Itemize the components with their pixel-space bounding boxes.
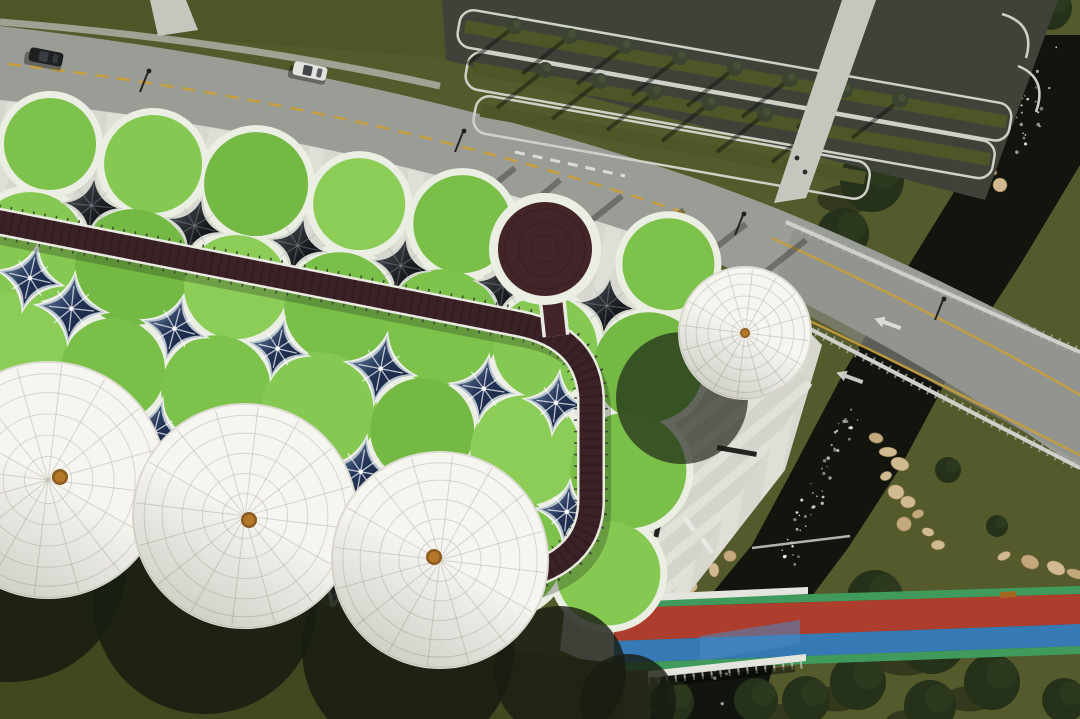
water-sparkle <box>812 492 814 494</box>
water-sparkle <box>1035 101 1037 103</box>
water-sparkle <box>797 555 800 558</box>
water-sparkle <box>1021 104 1023 106</box>
water-sparkle <box>1024 134 1026 136</box>
water-sparkle <box>848 426 851 429</box>
skylight-hub <box>554 400 559 405</box>
parking-tree-crown <box>568 30 576 38</box>
water-sparkle <box>1035 86 1037 88</box>
water-sparkle <box>785 555 787 557</box>
water-sparkle <box>810 514 811 515</box>
parking-tree-crown <box>623 40 631 48</box>
canopy-center-dot <box>244 515 255 526</box>
water-sparkle <box>826 456 830 460</box>
water-sparkle <box>1024 95 1026 97</box>
water-sparkle <box>1048 87 1050 89</box>
water-sparkle <box>838 423 840 425</box>
water-sparkle <box>791 545 794 548</box>
water-sparkle <box>812 505 815 508</box>
street-lamp-head <box>147 69 152 74</box>
water-sparkle <box>1037 123 1041 127</box>
tree-canopy-highlight <box>995 517 1007 529</box>
water-sparkle <box>810 483 811 484</box>
water-sparkle <box>828 476 831 479</box>
rock <box>931 540 945 550</box>
water-sparkle <box>848 438 851 441</box>
street-lamp-head <box>462 129 467 134</box>
water-sparkle <box>834 447 836 449</box>
canopy-center-dot <box>742 330 749 337</box>
water-sparkle <box>826 466 828 468</box>
water-sparkle <box>793 518 796 521</box>
water-sparkle <box>796 511 798 513</box>
parking-tree-crown <box>543 64 551 72</box>
water-sparkle <box>845 420 848 423</box>
skylight-hub <box>172 326 177 331</box>
aerial-park-photo <box>0 0 1080 719</box>
water-sparkle <box>1016 116 1018 118</box>
water-sparkle <box>1036 70 1039 73</box>
water-sparkle <box>822 496 825 499</box>
street-lamp-head <box>942 297 947 302</box>
water-sparkle <box>1026 98 1029 101</box>
water-sparkle <box>821 468 823 470</box>
water-sparkle <box>1024 142 1027 145</box>
skylight-hub <box>275 346 280 351</box>
water-sparkle <box>1020 123 1023 126</box>
parking-tree-crown <box>653 86 661 94</box>
parking-tree-crown <box>763 108 771 116</box>
water-sparkle <box>1055 47 1057 49</box>
water-sparkle <box>787 539 789 541</box>
water-sparkle <box>1021 112 1023 114</box>
water-sparkle <box>1040 107 1044 111</box>
water-sparkle <box>804 515 807 518</box>
skylight-hub <box>69 306 74 311</box>
water-sparkle <box>844 418 846 420</box>
tree-canopy-highlight <box>986 658 1017 689</box>
water-sparkle <box>821 502 824 505</box>
skylight-hub <box>565 510 570 515</box>
parking-tree-crown <box>678 51 686 59</box>
parking-tree-crown <box>598 75 606 83</box>
water-sparkle <box>816 495 818 497</box>
water-sparkle <box>796 528 799 531</box>
water-sparkle <box>850 408 852 410</box>
skylight-hub <box>358 469 363 474</box>
water-sparkle <box>822 472 825 475</box>
water-sparkle <box>831 444 833 446</box>
water-sparkle <box>836 430 838 432</box>
pedestrian-dot <box>803 170 808 175</box>
street-lamp-head <box>742 212 747 217</box>
aerial-photo-canvas <box>0 0 1080 719</box>
water-sparkle <box>1022 137 1025 140</box>
parking-tree-crown <box>708 97 716 105</box>
parking-tree-crown <box>513 20 521 28</box>
skylight-hub <box>28 276 33 281</box>
skylight-hub <box>378 366 383 371</box>
plaza-circle-deck <box>498 202 592 296</box>
water-sparkle <box>1022 132 1024 134</box>
water-sparkle <box>833 448 836 451</box>
tree-canopy-highlight <box>852 658 883 689</box>
water-sparkle <box>799 515 800 516</box>
orange-bench <box>1000 591 1016 598</box>
water-sparkle <box>781 549 783 551</box>
water-sparkle <box>799 530 801 532</box>
parking-tree-crown <box>733 62 741 70</box>
water-sparkle <box>793 563 796 566</box>
skylight-hub <box>481 386 486 391</box>
pedestrian-dot <box>795 156 800 161</box>
water-sparkle <box>857 419 859 421</box>
lawn-circle <box>104 115 202 213</box>
canopy-center-dot <box>55 472 66 483</box>
water-sparkle <box>823 459 826 462</box>
water-sparkle <box>792 554 794 556</box>
water-sparkle <box>836 449 839 452</box>
water-sparkle <box>805 525 807 527</box>
water-sparkle <box>1015 151 1018 154</box>
tree-canopy-highlight <box>801 680 827 706</box>
tree-canopy-highlight <box>945 459 959 473</box>
lawn-circle <box>313 158 405 250</box>
canopy-center-dot <box>429 552 440 563</box>
tree-canopy-highlight <box>752 681 776 705</box>
water-sparkle <box>721 702 724 705</box>
parking-tree-crown <box>788 73 796 81</box>
lawn-circle <box>4 98 96 190</box>
parking-tree-crown <box>898 94 906 102</box>
water-sparkle <box>800 499 803 502</box>
water-sparkle <box>821 490 823 492</box>
lawn-circle <box>204 132 308 236</box>
tree-canopy-highlight <box>925 684 954 713</box>
